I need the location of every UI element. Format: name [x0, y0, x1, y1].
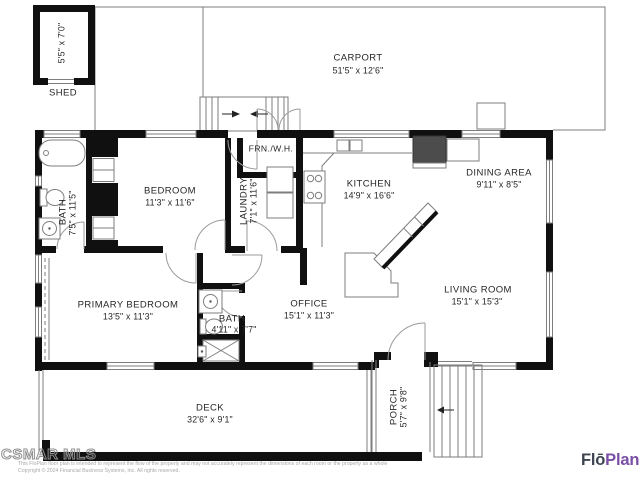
- refrigerator-icon: [413, 136, 446, 163]
- window-icon: [36, 307, 42, 337]
- window-icon: [36, 176, 42, 186]
- sink-icon: [199, 290, 222, 313]
- deck-label: DECK: [196, 403, 224, 414]
- carport-cabinet: [477, 103, 505, 129]
- counter-icon: [413, 163, 446, 168]
- living-label: LIVING ROOM: [444, 285, 512, 296]
- window-icon: [36, 255, 42, 283]
- stairs-arrow-icon: [437, 407, 444, 414]
- disclaimer-text: This FloPlan floor plan is intended to r…: [18, 461, 387, 475]
- door-icon: [166, 253, 196, 283]
- furnace-label: FRN./W.H.: [249, 143, 294, 153]
- dining-dims: 9'11" x 8'5": [476, 179, 521, 189]
- door-icon: [257, 109, 278, 130]
- window-icon: [462, 131, 500, 138]
- washer-dryer-icon: [267, 167, 293, 218]
- tub-drain-icon: [44, 151, 49, 156]
- laundry-dims: 7'1" x 11'6": [248, 178, 258, 223]
- shower-icon: [198, 340, 239, 361]
- door-icon: [388, 323, 425, 360]
- closet-shelf-icon: [93, 159, 114, 171]
- floplan-logo: FlōPlan: [581, 451, 639, 470]
- window-icon: [547, 160, 553, 223]
- kitchen-dims: 14'9" x 16'6": [344, 190, 395, 200]
- carport-stairs-icon: [200, 97, 288, 131]
- kitchen-sink-icon: [337, 140, 362, 151]
- bedroom-dims: 11'3" x 11'6": [145, 197, 195, 207]
- bath2-dims: 4'11" x 7'7": [211, 324, 256, 334]
- bedroom-label: BEDROOM: [144, 186, 196, 197]
- door-icon: [232, 255, 262, 285]
- stairs-arrow-right-icon: [232, 111, 240, 118]
- office-dims: 15'1" x 11'3": [284, 310, 334, 320]
- primary-label: PRIMARY BEDROOM: [78, 300, 179, 311]
- cabinet-icon: [447, 139, 479, 161]
- living-dims: 15'1" x 15'3": [452, 296, 503, 306]
- kitchen-bar-icon: [374, 203, 437, 268]
- carport-label: CARPORT: [333, 53, 382, 64]
- window-icon: [107, 363, 154, 370]
- bath1-dims: 7'5" x 11'5": [67, 190, 77, 235]
- door-icon: [247, 221, 277, 251]
- floplan-logo-plan: Plan: [605, 451, 639, 469]
- floor-plan: 5'5" x 7'0" SHED CARPORT 51'5" x 12'6" B…: [0, 0, 640, 480]
- office-label: OFFICE: [290, 299, 327, 310]
- window-icon: [547, 272, 553, 337]
- floplan-logo-flo: Flō: [581, 451, 605, 469]
- window-icon: [313, 363, 358, 370]
- dining-label: DINING AREA: [466, 168, 532, 179]
- kitchen-label: KITCHEN: [347, 179, 392, 190]
- door-icon: [195, 220, 225, 250]
- porch-stairs-icon: [434, 365, 482, 457]
- closet-shelf-icon: [93, 170, 114, 182]
- door-icon: [279, 109, 300, 130]
- primary-dims: 13'5" x 11'3": [103, 311, 153, 321]
- disclaimer-line1: This FloPlan floor plan is intended to r…: [18, 461, 387, 468]
- window-icon: [146, 131, 196, 138]
- window-icon: [473, 363, 516, 370]
- bath2-label: BATH: [219, 314, 245, 325]
- stove-icon: [304, 171, 325, 203]
- shed-label: SHED: [49, 88, 77, 99]
- closet-sliding-door-icon: [45, 258, 49, 360]
- closet-shelf-icon: [93, 228, 114, 239]
- carport-dims: 51'5" x 12'6": [333, 65, 384, 75]
- shed-dims: 5'5" x 7'0": [56, 23, 66, 64]
- disclaimer-line2: Copyright © 2024 Financial Business Syst…: [18, 468, 387, 475]
- porch-dims: 5'7" x 9'8": [398, 387, 408, 428]
- window-icon: [334, 131, 409, 138]
- floor-plan-drawing: 5'5" x 7'0" SHED CARPORT 51'5" x 12'6" B…: [0, 0, 640, 480]
- window-icon: [44, 131, 80, 138]
- closet-shelf-icon: [93, 217, 114, 228]
- deck-dims: 32'6" x 9'1": [187, 414, 233, 424]
